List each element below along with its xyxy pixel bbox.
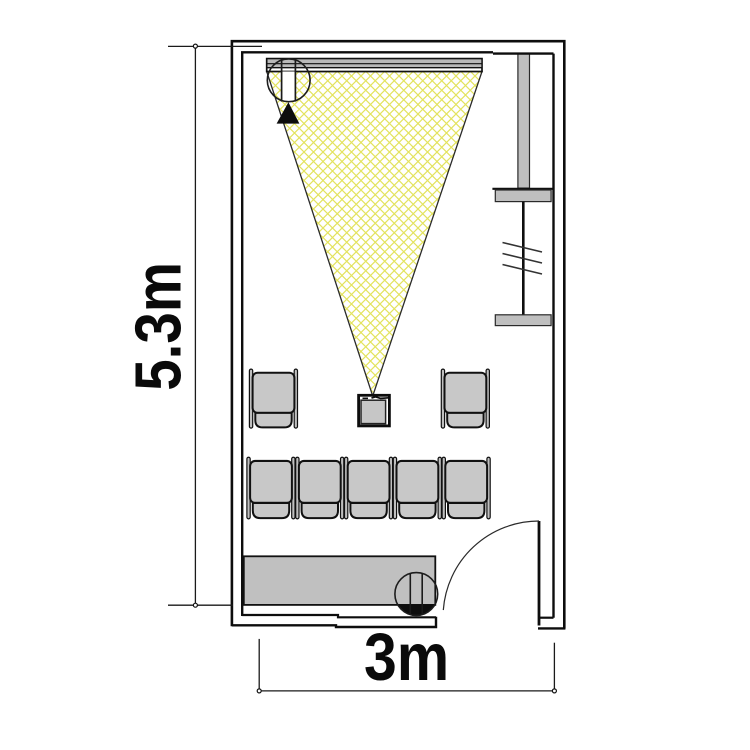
svg-text:5.3m: 5.3m [122,262,195,391]
svg-text:3m: 3m [364,621,449,695]
